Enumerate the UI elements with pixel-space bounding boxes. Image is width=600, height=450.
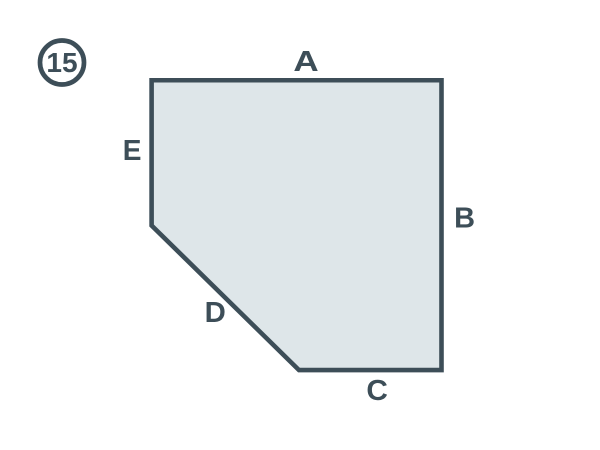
svg-text:E: E — [123, 135, 142, 167]
svg-text:A: A — [293, 46, 318, 78]
svg-text:B: B — [454, 203, 475, 235]
svg-text:C: C — [366, 375, 388, 407]
svg-text:D: D — [205, 297, 226, 329]
svg-text:15: 15 — [46, 47, 77, 78]
